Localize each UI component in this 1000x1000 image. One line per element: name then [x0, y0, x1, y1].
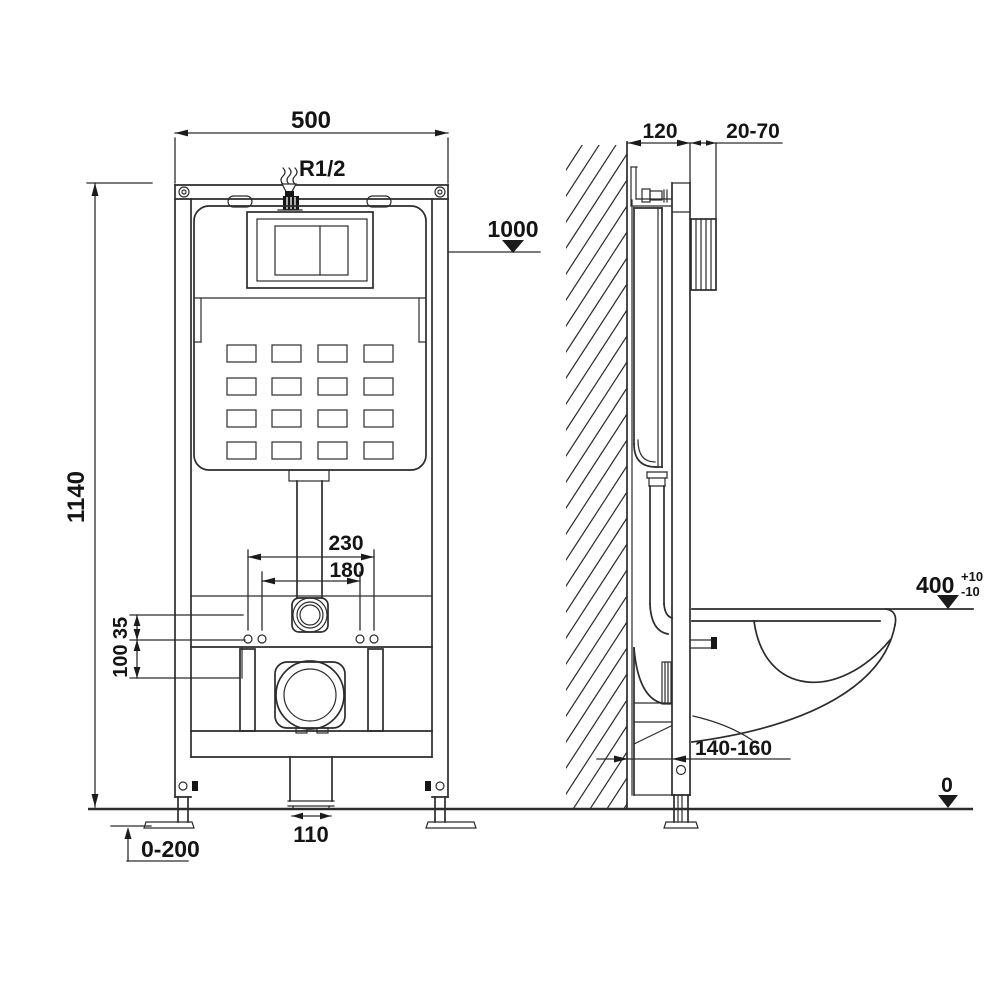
dim-depth-group: 120 20-70 — [628, 120, 782, 218]
dim-label-water-inlet: R1/2 — [299, 156, 345, 181]
wall-bracket — [631, 167, 671, 206]
flush-pipe-front — [289, 470, 329, 598]
dim-fixing-spans: 230 180 — [248, 532, 374, 630]
dim-label-tol-plus: +10 — [961, 569, 983, 584]
dim-label-wall-finish: 20-70 — [726, 120, 780, 143]
dim-label-button-height: 1000 — [487, 216, 538, 242]
dim-leg-adjustment: 0-200 — [111, 826, 200, 862]
dim-label-span-inner: 180 — [329, 559, 364, 582]
dim-label-leg-adjustment: 0-200 — [141, 836, 200, 862]
side-view: 120 20-70 — [566, 76, 983, 898]
adjustable-legs — [144, 781, 476, 828]
dim-label-tol-minus: -10 — [961, 584, 980, 599]
technical-drawing: 500 1140 — [0, 0, 1000, 1000]
cistern-side — [634, 208, 662, 467]
dim-drain-offset: 140-160 — [597, 737, 790, 763]
dim-label-drain-width: 110 — [293, 822, 329, 847]
flush-bend-fitting — [292, 598, 328, 632]
fixing-bolt-holes — [244, 635, 378, 643]
installation-drawing-page: 500 1140 — [0, 0, 1000, 1000]
dim-label-span-outer: 230 — [328, 532, 363, 555]
front-view: 500 1140 — [63, 107, 540, 862]
flush-plate-housing — [691, 219, 716, 290]
drain-pipe-bottom: 110 — [288, 757, 334, 847]
toilet-bowl — [692, 609, 896, 742]
flush-pipe-side — [647, 472, 717, 649]
dim-label-floor-level: 0 — [941, 774, 953, 797]
mounting-grid — [227, 345, 393, 459]
level-marker-floor: 0 — [938, 774, 958, 808]
level-marker-seat: 400 +10 -10 — [692, 569, 983, 609]
frame-rail-side — [672, 183, 690, 795]
water-inlet: R1/2 — [278, 156, 345, 210]
level-marker-1000: 1000 — [448, 216, 540, 253]
fixing-rod-cap — [711, 637, 717, 649]
mounting-frame — [175, 185, 448, 797]
cistern-front — [194, 206, 426, 470]
flush-plate-window — [247, 212, 373, 288]
dim-label-frame-depth: 120 — [642, 120, 677, 143]
dim-label-offset-lower: 100 — [110, 644, 132, 677]
wall-hatch — [566, 76, 627, 898]
dim-overall-height: 1140 — [63, 183, 152, 807]
wall-section — [566, 76, 632, 898]
drain-elbow-side — [634, 648, 672, 795]
dim-label-bowl-height: 400 — [916, 572, 954, 598]
dim-label-overall-width: 500 — [291, 107, 331, 134]
drain-clamp-section — [191, 647, 432, 757]
dim-label-overall-height: 1140 — [63, 471, 90, 523]
leg-side — [664, 795, 698, 828]
dim-label-offset-upper: 35 — [110, 617, 132, 639]
